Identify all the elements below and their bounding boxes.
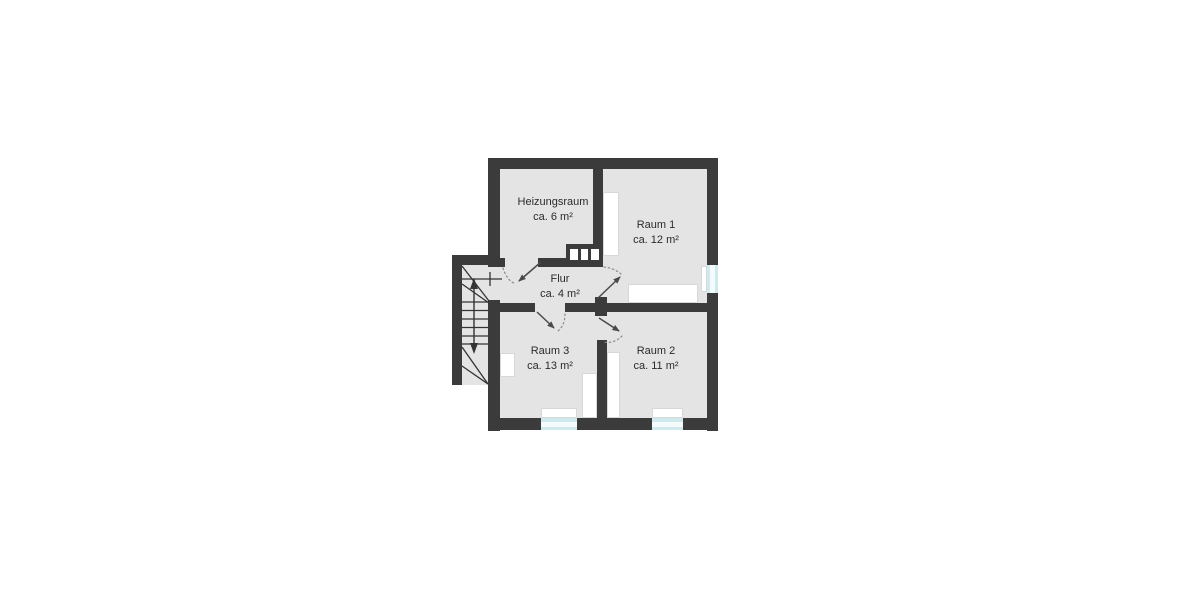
- door-heizungsraum: [503, 262, 541, 284]
- staircase: [462, 266, 502, 384]
- stair-walk-arrow-down: [470, 343, 478, 354]
- stair-winder: [462, 347, 488, 384]
- stair-winder: [462, 366, 488, 384]
- floor-plan: Heizungsraum ca. 6 m² Raum 1 ca. 12 m² F…: [0, 0, 1200, 600]
- stairs-and-doors-overlay: [0, 0, 1200, 600]
- door-raum3: [537, 312, 565, 331]
- door-raum1: [597, 267, 621, 299]
- door-raum2: [599, 318, 622, 342]
- door-swings: [503, 262, 622, 342]
